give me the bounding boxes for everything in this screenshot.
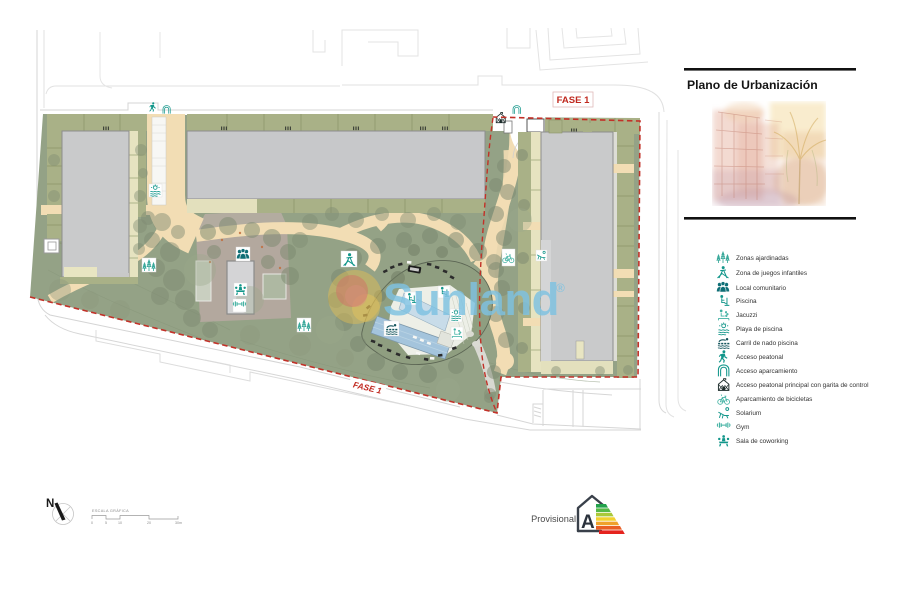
svg-text:FASE 1: FASE 1 xyxy=(557,95,590,106)
svg-text:Acceso peatonal principal con: Acceso peatonal principal con garita de … xyxy=(736,382,869,389)
svg-text:Zonas ajardinadas: Zonas ajardinadas xyxy=(736,255,789,262)
svg-text:0: 0 xyxy=(91,521,93,525)
svg-text:20: 20 xyxy=(147,521,151,525)
svg-text:30m: 30m xyxy=(175,521,182,525)
svg-text:Provisional: Provisional xyxy=(531,514,576,524)
svg-text:Zona de juegos infantiles: Zona de juegos infantiles xyxy=(736,270,807,277)
svg-text:®: ® xyxy=(556,281,565,295)
svg-text:Acceso peatonal: Acceso peatonal xyxy=(736,354,783,361)
svg-text:Local comunitario: Local comunitario xyxy=(736,285,787,292)
svg-text:Sunland: Sunland xyxy=(383,274,559,325)
svg-text:5: 5 xyxy=(105,521,107,525)
svg-text:Acceso aparcamiento: Acceso aparcamiento xyxy=(736,368,798,375)
svg-text:Aparcamiento de bicicletas: Aparcamiento de bicicletas xyxy=(736,396,812,403)
svg-text:Piscina: Piscina xyxy=(736,298,757,305)
svg-text:Sala de coworking: Sala de coworking xyxy=(736,438,789,445)
svg-text:Carril de nado piscina: Carril de nado piscina xyxy=(736,340,798,347)
svg-text:Playa de piscina: Playa de piscina xyxy=(736,326,783,333)
svg-text:10: 10 xyxy=(118,521,122,525)
svg-text:Solarium: Solarium xyxy=(736,410,761,417)
svg-text:Gym: Gym xyxy=(736,424,750,431)
svg-text:Plano de Urbanización: Plano de Urbanización xyxy=(687,78,818,92)
svg-text:N: N xyxy=(46,498,54,510)
svg-text:Jacuzzi: Jacuzzi xyxy=(736,312,757,319)
svg-text:ESCALA GRÁFICA: ESCALA GRÁFICA xyxy=(92,509,129,513)
svg-text:A: A xyxy=(581,512,595,533)
